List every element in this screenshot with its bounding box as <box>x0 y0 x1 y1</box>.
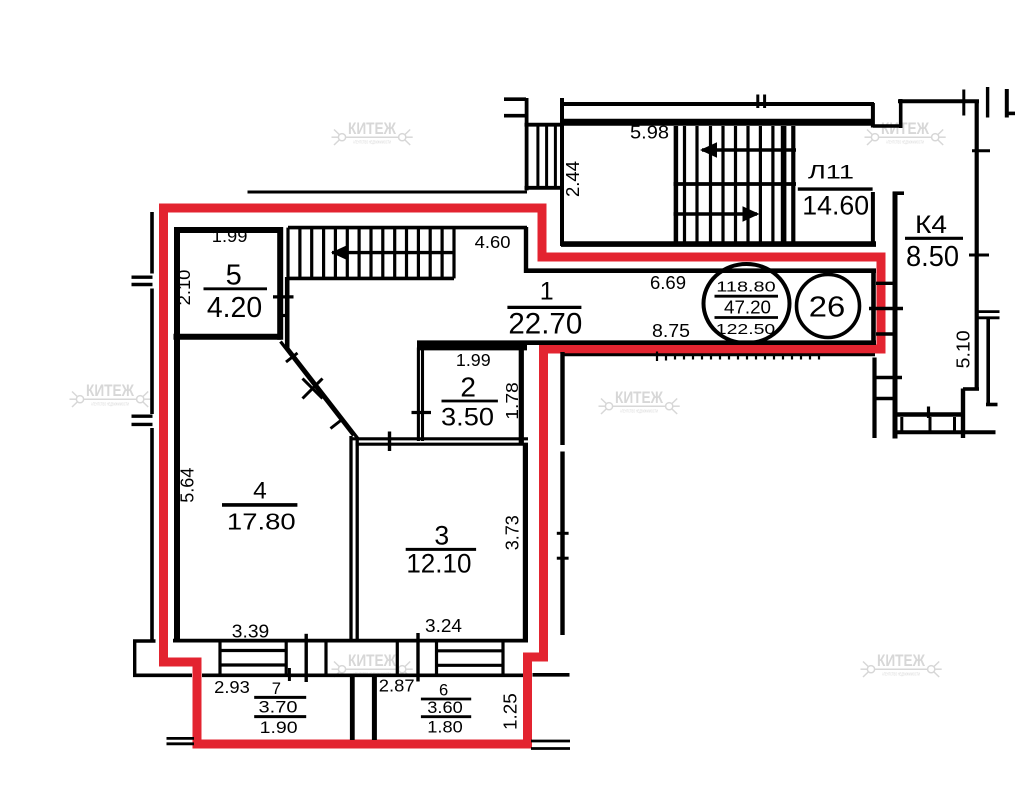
svg-text:1.78: 1.78 <box>502 382 522 420</box>
svg-text:3: 3 <box>434 520 449 550</box>
svg-text:8.50: 8.50 <box>906 241 959 273</box>
svg-text:1.80: 1.80 <box>427 717 463 736</box>
svg-text:2.10: 2.10 <box>174 269 194 305</box>
svg-text:2: 2 <box>460 372 476 403</box>
svg-text:7: 7 <box>272 679 281 698</box>
svg-text:2.87: 2.87 <box>379 676 415 696</box>
svg-text:1.99: 1.99 <box>212 226 248 246</box>
svg-text:3.70: 3.70 <box>259 697 298 716</box>
svg-text:47.20: 47.20 <box>724 298 771 318</box>
svg-text:Л11: Л11 <box>808 162 854 183</box>
svg-text:3.24: 3.24 <box>425 616 462 636</box>
svg-text:К4: К4 <box>915 212 947 239</box>
svg-text:4.20: 4.20 <box>207 292 262 324</box>
svg-text:12.10: 12.10 <box>406 549 471 579</box>
svg-text:4: 4 <box>253 478 267 505</box>
svg-text:5: 5 <box>226 259 242 291</box>
svg-text:17.80: 17.80 <box>227 509 296 535</box>
svg-text:3.60: 3.60 <box>427 698 463 717</box>
svg-text:1.99: 1.99 <box>456 350 491 370</box>
svg-text:1.25: 1.25 <box>501 693 521 730</box>
svg-text:1: 1 <box>540 278 554 306</box>
svg-text:5.98: 5.98 <box>630 123 669 143</box>
svg-text:3.73: 3.73 <box>503 515 523 550</box>
svg-text:22.70: 22.70 <box>508 308 582 341</box>
svg-text:14.60: 14.60 <box>802 191 869 221</box>
svg-text:3.39: 3.39 <box>232 622 269 642</box>
svg-text:4.60: 4.60 <box>475 232 511 252</box>
svg-text:26: 26 <box>809 291 846 323</box>
svg-text:5.64: 5.64 <box>178 468 198 503</box>
svg-text:3.50: 3.50 <box>441 404 494 432</box>
svg-text:5.10: 5.10 <box>954 330 974 368</box>
svg-text:122.50: 122.50 <box>716 321 776 338</box>
svg-text:8.75: 8.75 <box>652 321 690 341</box>
svg-text:2.44: 2.44 <box>563 161 583 197</box>
svg-text:2.93: 2.93 <box>214 677 250 697</box>
svg-text:6.69: 6.69 <box>650 273 686 293</box>
svg-text:1.90: 1.90 <box>260 718 298 737</box>
svg-text:118.80: 118.80 <box>716 279 775 295</box>
